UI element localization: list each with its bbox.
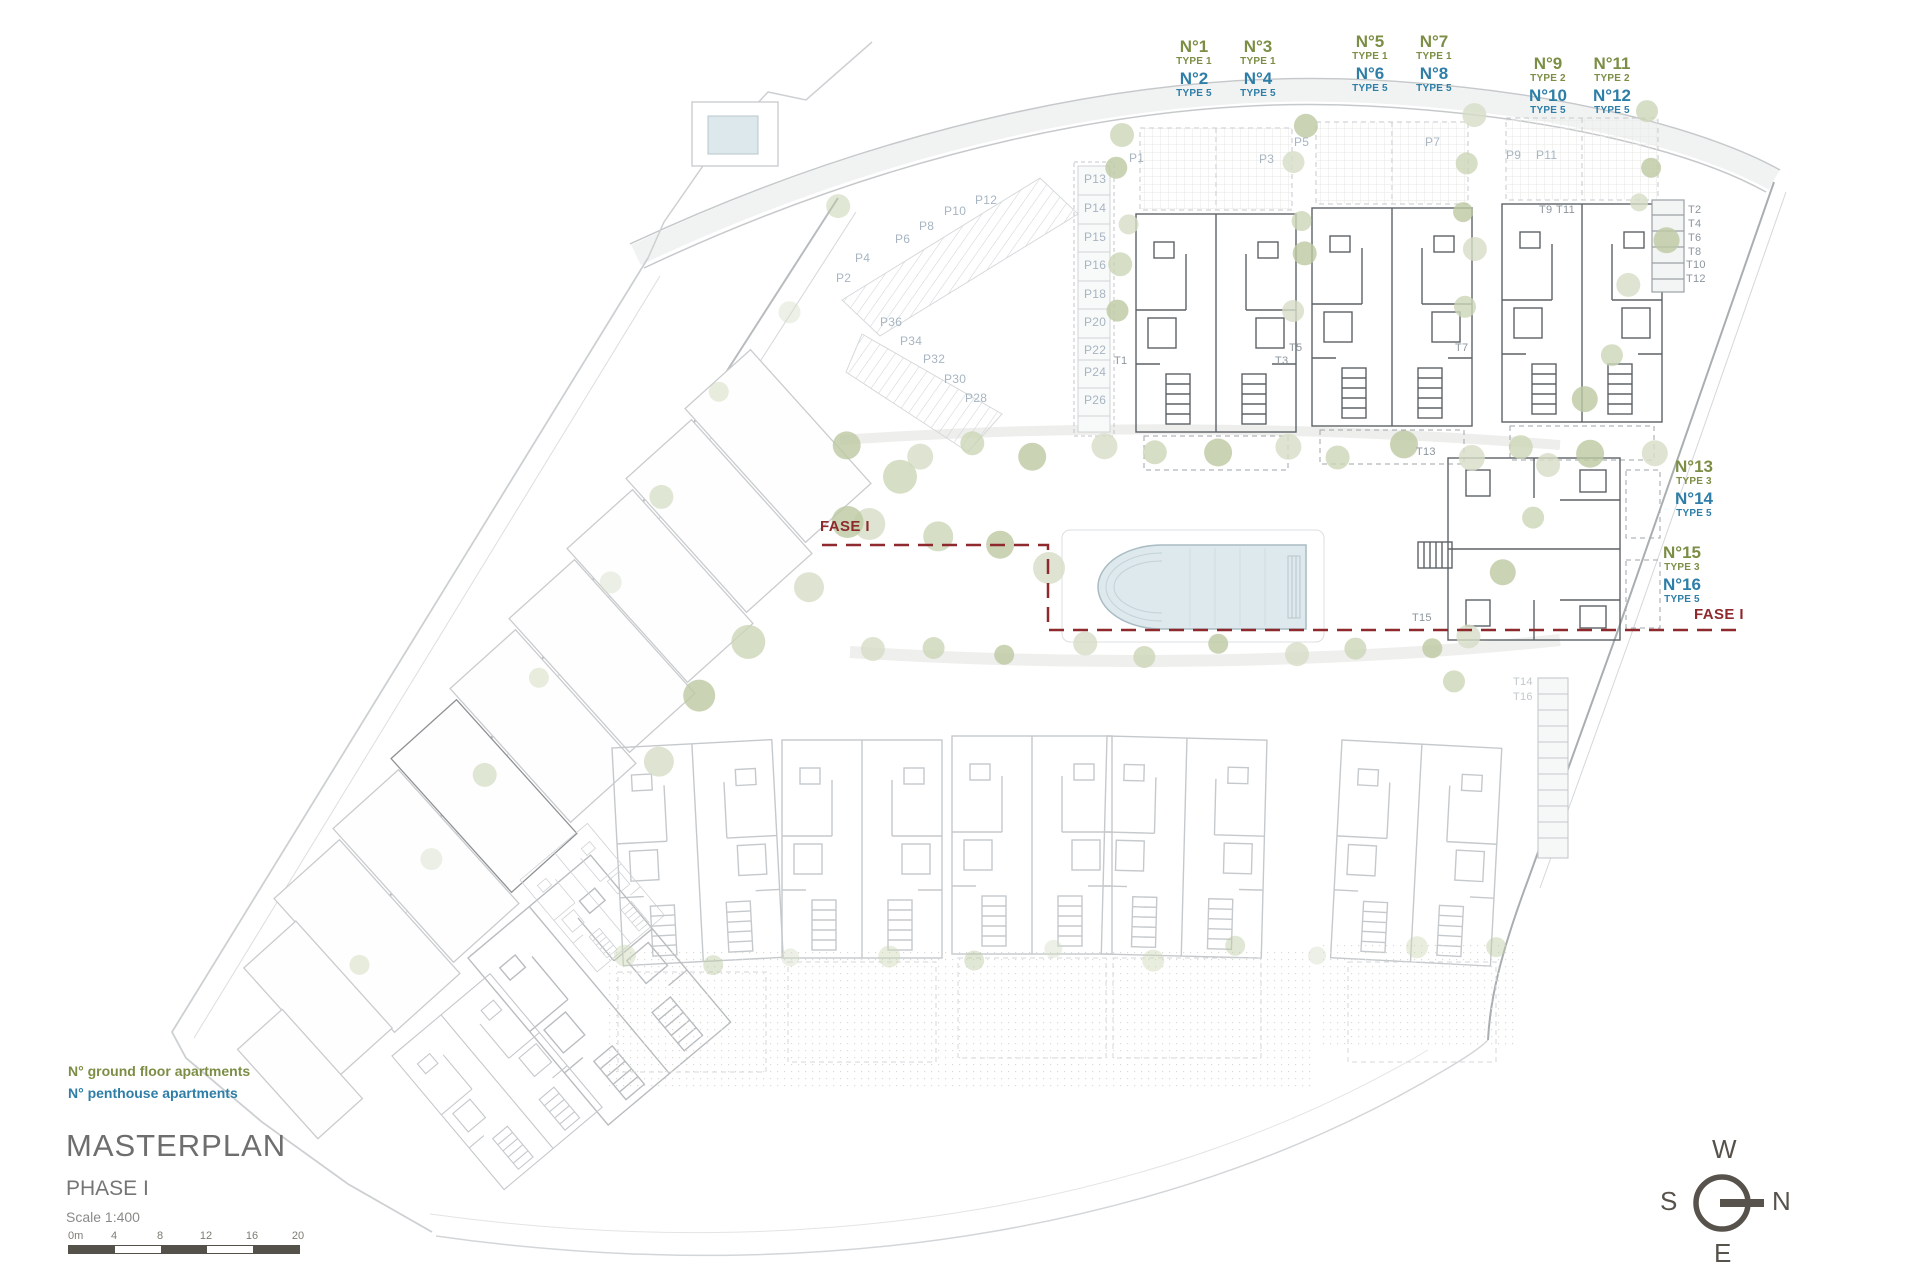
scale-segment <box>161 1246 207 1253</box>
apartment-label: N°5TYPE 1 <box>1342 33 1398 62</box>
parking-space-label: P1 <box>1129 151 1144 165</box>
apartment-label: N°6TYPE 5 <box>1342 65 1398 94</box>
scale-tick-label: 8 <box>157 1230 163 1242</box>
parking-space-label: P9 <box>1506 148 1521 162</box>
scale-note: Scale 1:400 <box>66 1209 286 1225</box>
apartment-group-label: N°5TYPE 1N°7TYPE 1N°6TYPE 5N°8TYPE 5 <box>1342 33 1462 94</box>
stair-core-label: T16 <box>1513 691 1533 703</box>
apartment-label: N°7TYPE 1 <box>1406 33 1462 62</box>
apartment-label: N°8TYPE 5 <box>1406 65 1462 94</box>
apartment-group-label: N°15TYPE 3N°16TYPE 5 <box>1650 544 1714 605</box>
stair-core-label: T13 <box>1416 446 1436 458</box>
apartment-label: N°11TYPE 2 <box>1584 55 1640 84</box>
stair-core-label: T4 <box>1688 218 1701 230</box>
parking-space-label: P3 <box>1259 152 1274 166</box>
apartment-label: N°10TYPE 5 <box>1520 87 1576 116</box>
stair-core-label: T2 <box>1688 204 1701 216</box>
parking-space-label: P13 <box>1084 172 1106 186</box>
parking-space-label: P28 <box>965 391 987 405</box>
parking-space-label: P10 <box>944 204 966 218</box>
apartment-label: N°13TYPE 3 <box>1662 458 1726 487</box>
apartment-group-label: N°1TYPE 1N°3TYPE 1N°2TYPE 5N°4TYPE 5 <box>1166 38 1286 99</box>
parking-space-label: P12 <box>975 193 997 207</box>
compass-south: S <box>1660 1186 1677 1217</box>
masterplan-page: P1P3P5P7P9P11P13P14P15P16P18P20P22P24P26… <box>0 0 1920 1280</box>
scale-tick-label: 0m <box>68 1230 83 1242</box>
title-block: MASTERPLAN PHASE I Scale 1:400 <box>66 1128 286 1225</box>
parking-space-label: P8 <box>919 219 934 233</box>
stair-core-label: T11 <box>1556 204 1575 216</box>
parking-space-label: P22 <box>1084 343 1106 357</box>
compass: W N S E <box>1650 1132 1794 1276</box>
stair-core-label: T6 <box>1688 232 1701 244</box>
apartment-label: N°12TYPE 5 <box>1584 87 1640 116</box>
scale-segment <box>69 1246 115 1253</box>
parking-space-label: P36 <box>880 315 902 329</box>
parking-space-label: P14 <box>1084 201 1106 215</box>
phase-subtitle: PHASE I <box>66 1177 286 1201</box>
compass-north: N <box>1772 1186 1791 1217</box>
phase-boundary-label: FASE I <box>1694 606 1744 623</box>
legend-ground-floor: N° ground floor apartments <box>68 1060 250 1082</box>
parking-space-label: P26 <box>1084 393 1106 407</box>
parking-space-label: P18 <box>1084 287 1106 301</box>
parking-space-label: P32 <box>923 352 945 366</box>
stair-core-label: T8 <box>1688 246 1701 258</box>
page-title: MASTERPLAN <box>66 1128 286 1164</box>
parking-space-label: P34 <box>900 334 922 348</box>
apartment-label: N°2TYPE 5 <box>1166 70 1222 99</box>
scale-segment <box>207 1246 253 1253</box>
stair-core-label: T7 <box>1455 342 1468 354</box>
stair-core-label: T5 <box>1289 342 1302 354</box>
parking-space-label: P30 <box>944 372 966 386</box>
compass-east: E <box>1714 1238 1731 1269</box>
apartment-label: N°3TYPE 1 <box>1230 38 1286 67</box>
parking-space-label: P16 <box>1084 258 1106 272</box>
scale-tick-label: 20 <box>292 1230 304 1242</box>
stair-core-label: T15 <box>1412 612 1432 624</box>
apartment-label: N°16TYPE 5 <box>1650 576 1714 605</box>
stair-core-label: T14 <box>1513 676 1533 688</box>
apartment-group-label: N°13TYPE 3N°14TYPE 5 <box>1662 458 1726 519</box>
parking-space-label: P24 <box>1084 365 1106 379</box>
legend: N° ground floor apartments N° penthouse … <box>68 1060 250 1105</box>
stair-core-label: T1 <box>1114 355 1127 367</box>
plan-labels: P1P3P5P7P9P11P13P14P15P16P18P20P22P24P26… <box>0 0 1920 1280</box>
parking-space-label: P11 <box>1536 148 1557 162</box>
apartment-label: N°1TYPE 1 <box>1166 38 1222 67</box>
stair-core-label: T12 <box>1686 273 1706 285</box>
scale-segment <box>253 1246 299 1253</box>
scale-tick-label: 16 <box>246 1230 258 1242</box>
scale-tick-label: 12 <box>200 1230 212 1242</box>
phase-boundary-label: FASE I <box>820 518 870 535</box>
parking-space-label: P20 <box>1084 315 1106 329</box>
apartment-label: N°9TYPE 2 <box>1520 55 1576 84</box>
scale-bar <box>68 1245 300 1254</box>
parking-space-label: P7 <box>1425 135 1440 149</box>
parking-space-label: P4 <box>855 251 870 265</box>
parking-space-label: P6 <box>895 232 910 246</box>
scale-bar-ticks: 0m48121620 <box>68 1230 308 1242</box>
compass-west: W <box>1712 1134 1737 1165</box>
parking-space-label: P2 <box>836 271 851 285</box>
parking-space-label: P15 <box>1084 230 1106 244</box>
stair-core-label: T10 <box>1686 259 1706 271</box>
apartment-label: N°4TYPE 5 <box>1230 70 1286 99</box>
apartment-label: N°15TYPE 3 <box>1650 544 1714 573</box>
parking-space-label: P5 <box>1294 135 1309 149</box>
apartment-label: N°14TYPE 5 <box>1662 490 1726 519</box>
legend-penthouse: N° penthouse apartments <box>68 1082 250 1104</box>
scale-segment <box>115 1246 161 1253</box>
scale-tick-label: 4 <box>111 1230 117 1242</box>
stair-core-label: T3 <box>1275 355 1288 367</box>
apartment-group-label: N°9TYPE 2N°11TYPE 2N°10TYPE 5N°12TYPE 5 <box>1520 55 1640 116</box>
stair-core-label: T9 <box>1539 204 1552 216</box>
